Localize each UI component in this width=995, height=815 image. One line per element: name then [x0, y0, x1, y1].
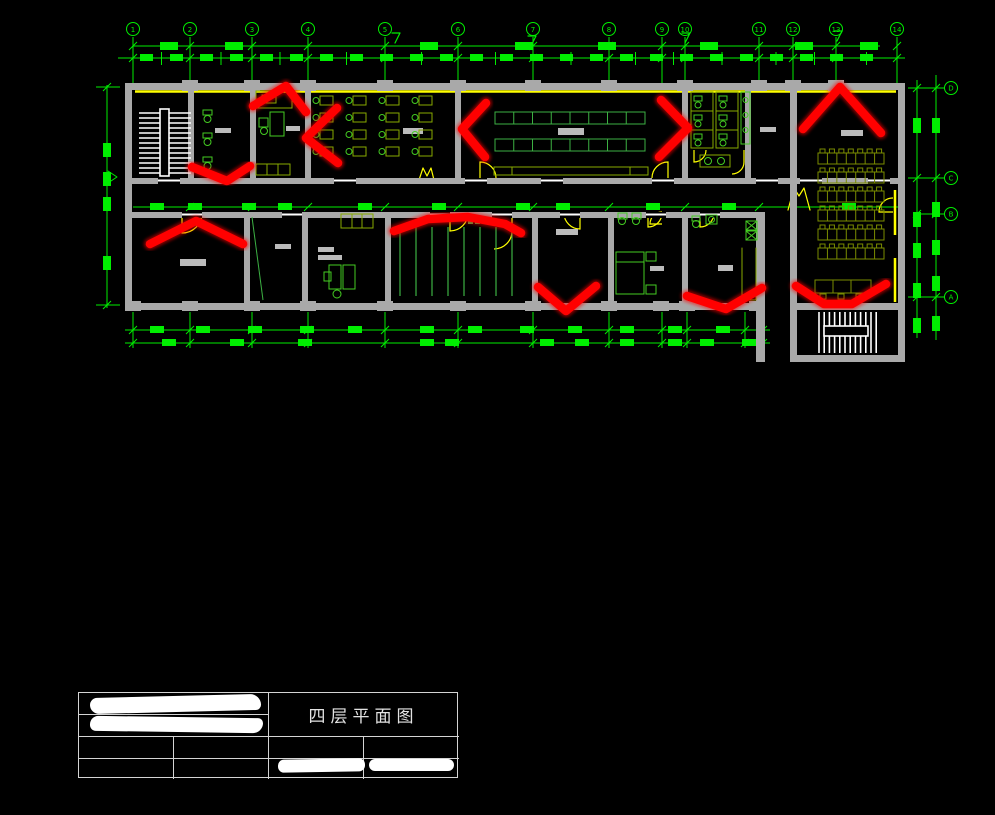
svg-text:D: D: [948, 85, 953, 93]
drawing-title: 四层平面图: [268, 693, 459, 736]
svg-text:13: 13: [832, 26, 841, 34]
title-block-divider: [79, 714, 269, 715]
svg-text:B: B: [949, 211, 954, 219]
svg-text:2: 2: [188, 26, 192, 34]
title-block-divider: [79, 736, 459, 737]
cad-canvas: 1234567891011121314DCBA 四层平面图: [0, 0, 995, 815]
svg-text:A: A: [949, 294, 954, 302]
svg-text:8: 8: [607, 26, 611, 34]
svg-text:9: 9: [660, 26, 664, 34]
svg-text:6: 6: [456, 26, 461, 34]
redacted-text-blob: [90, 694, 261, 714]
svg-text:C: C: [949, 175, 954, 183]
svg-text:5: 5: [383, 26, 387, 34]
svg-text:3: 3: [250, 26, 254, 34]
redacted-text-blob: [278, 758, 365, 773]
svg-text:7: 7: [531, 26, 535, 34]
red-checkmark: [462, 103, 486, 157]
title-block: 四层平面图: [78, 692, 458, 778]
wall-layer: [125, 80, 905, 362]
red-checkmark: [150, 221, 243, 244]
svg-text:14: 14: [893, 26, 902, 34]
svg-text:10: 10: [681, 26, 690, 34]
redacted-text-blob: [90, 716, 263, 733]
red-checkmark: [803, 87, 881, 133]
svg-text:1: 1: [131, 26, 135, 34]
svg-text:12: 12: [789, 26, 798, 34]
redacted-text-blob: [369, 759, 454, 771]
svg-text:11: 11: [755, 26, 764, 34]
svg-text:4: 4: [306, 26, 311, 34]
